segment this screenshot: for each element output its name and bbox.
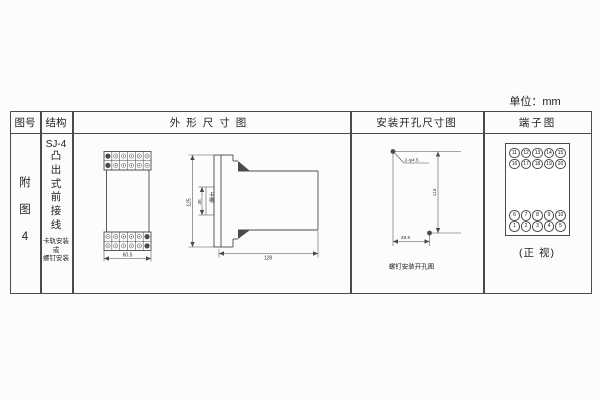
- terminal-screw-center: [131, 156, 132, 157]
- terminal-screw-center: [115, 236, 116, 237]
- terminal-screw-center: [131, 236, 132, 237]
- dim-rail-slot: 35: [197, 187, 206, 215]
- side-mounting-plate: [214, 155, 221, 247]
- column-divider-4: [483, 111, 485, 294]
- din-clip-top: [238, 161, 250, 171]
- terminal-screw-center: [146, 156, 147, 157]
- terminal-screw-center: [123, 165, 124, 166]
- terminal-13: 13: [532, 148, 543, 159]
- front-terminal-block-top: [104, 152, 151, 171]
- terminal-caption: (正 视): [492, 245, 582, 260]
- terminal-7: 7: [521, 210, 532, 221]
- side-view: 125 35 128: [187, 155, 319, 262]
- terminal-screw: [105, 154, 110, 159]
- dim-front-width-label: 60.5: [123, 253, 133, 259]
- structure-type: 凸 出 式 前 接 线: [40, 150, 72, 233]
- terminal-row: 678910: [506, 210, 569, 221]
- hole-size-label: 2-φ4.5: [405, 158, 419, 164]
- dim-rail-slot-label: 35: [197, 199, 203, 205]
- front-body: [107, 170, 150, 232]
- terminal-19: 19: [544, 159, 555, 170]
- structure-model: SJ-4: [40, 139, 72, 150]
- structure-cell: SJ-4 凸 出 式 前 接 线 卡轨安装 或 螺钉安装: [40, 139, 72, 264]
- terminal-screw-center: [131, 245, 132, 246]
- rail-slot-label: 卡槽: [208, 192, 214, 203]
- terminal-screw-center: [146, 165, 147, 166]
- header-mounting-holes: 安装开孔尺寸图: [350, 116, 483, 130]
- header-structure: 结构: [40, 116, 72, 130]
- terminal-row: 1617181920: [506, 159, 569, 170]
- terminal-screw-center: [139, 165, 140, 166]
- terminal-screw: [144, 234, 149, 239]
- mounting-drawing-svg: 2-φ4.5 113 48.5 螺钉安装开孔图: [350, 133, 483, 294]
- outline-drawing-svg: 60.5 125: [72, 133, 350, 294]
- figure-number-cell: 附 图 4: [10, 170, 40, 251]
- terminal-screw: [144, 243, 149, 248]
- terminal-screw-center: [139, 236, 140, 237]
- terminal-15: 15: [555, 148, 566, 159]
- header-outline-drawing: 外形尺寸图: [72, 116, 350, 130]
- terminal-14: 14: [544, 148, 555, 159]
- terminal-screw-center: [107, 236, 108, 237]
- dim-hole-vertical: 113: [432, 152, 438, 234]
- terminal-8: 8: [532, 210, 543, 221]
- terminal-18: 18: [532, 159, 543, 170]
- terminal-11: 11: [509, 148, 520, 159]
- terminal-row: 12345: [506, 221, 569, 232]
- dim-hole-horizontal-label: 48.5: [401, 235, 411, 241]
- dim-side-height-label: 125: [187, 198, 193, 207]
- terminal-rows-bottom: 67891012345: [506, 210, 569, 233]
- terminal-1: 1: [509, 221, 520, 232]
- terminal-screw-center: [123, 245, 124, 246]
- terminal-16: 16: [509, 159, 520, 170]
- dim-side-depth-label: 128: [264, 256, 273, 262]
- terminal-10: 10: [555, 210, 566, 221]
- terminal-screw-center: [139, 156, 140, 157]
- terminal-3: 3: [532, 221, 543, 232]
- terminal-12: 12: [521, 148, 532, 159]
- din-clip-bottom: [238, 230, 250, 239]
- terminal-screw-center: [107, 245, 108, 246]
- dim-side-depth: 128: [219, 231, 318, 262]
- dim-hole-horizontal: 48.5: [393, 235, 430, 241]
- terminal-5: 5: [555, 221, 566, 232]
- terminal-screw-center: [123, 156, 124, 157]
- terminal-screw-center: [123, 236, 124, 237]
- terminal-row: 1112131415: [506, 148, 569, 159]
- dim-front-width: 60.5: [104, 251, 151, 262]
- terminal-screw-center: [115, 165, 116, 166]
- terminal-screw-center: [139, 245, 140, 246]
- header-terminal-diagram: 端子图: [483, 116, 592, 130]
- terminal-screw: [105, 163, 110, 168]
- terminal-box: 11121314151617181920 67891012345: [505, 143, 570, 236]
- unit-label: 单位：mm: [480, 93, 590, 109]
- terminal-4: 4: [544, 221, 555, 232]
- terminal-20: 20: [555, 159, 566, 170]
- terminal-2: 2: [521, 221, 532, 232]
- page: 单位：mm 图号 结构 外形尺寸图 安装开孔尺寸图 端子图 附 图 4 SJ-4…: [0, 0, 600, 400]
- terminal-screw-center: [115, 156, 116, 157]
- terminal-rows-top: 11121314151617181920: [506, 147, 569, 170]
- mounting-caption: 螺钉安装开孔图: [389, 262, 435, 271]
- terminal-9: 9: [544, 210, 555, 221]
- front-terminal-block-bottom: [104, 232, 151, 251]
- terminal-screw-center: [115, 245, 116, 246]
- terminal-6: 6: [509, 210, 520, 221]
- terminal-17: 17: [521, 159, 532, 170]
- dim-hole-vertical-label: 113: [432, 188, 438, 196]
- structure-mount-note: 卡轨安装 或 螺钉安装: [40, 238, 72, 264]
- header-figure-no: 图号: [10, 116, 40, 130]
- front-view: 60.5: [104, 152, 151, 262]
- terminal-screw-center: [131, 165, 132, 166]
